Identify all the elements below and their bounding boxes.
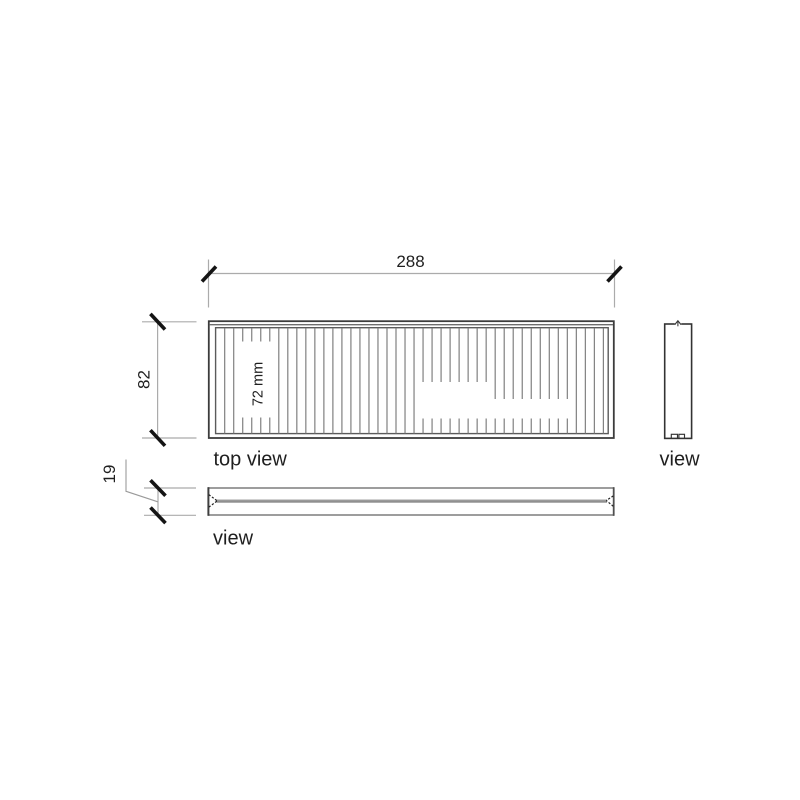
svg-text:19: 19: [100, 465, 119, 484]
svg-text:view: view: [660, 448, 701, 470]
svg-text:top view: top view: [214, 448, 288, 470]
svg-text:82: 82: [135, 370, 154, 389]
svg-text:72 mm: 72 mm: [251, 362, 267, 406]
svg-text:view: view: [213, 528, 254, 550]
svg-text:288: 288: [396, 252, 424, 271]
